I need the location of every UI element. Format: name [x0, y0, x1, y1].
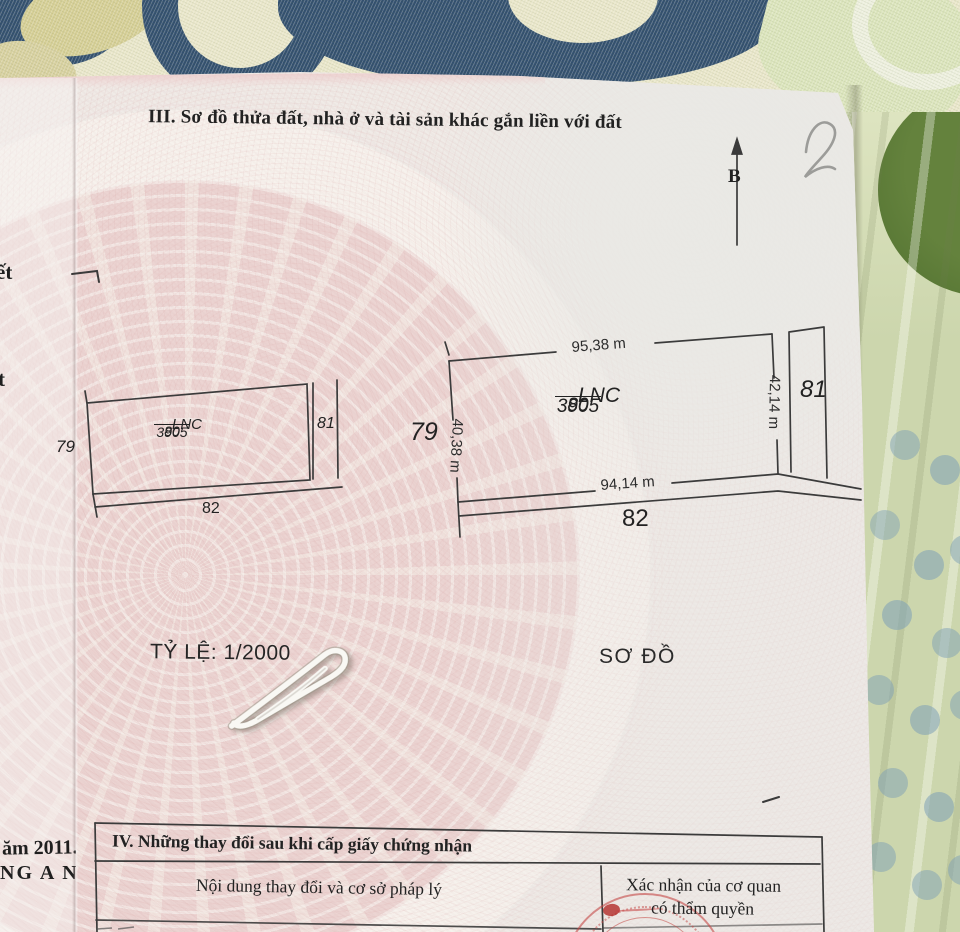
pen-marks	[72, 271, 779, 802]
dimension-left: 40,38 m	[446, 418, 466, 473]
main-neighbor-right-label: 81	[800, 376, 827, 404]
handwritten-number-stroke	[805, 122, 835, 177]
mini-neighbor-left-label: 79	[56, 437, 75, 457]
main-neighbor-bottom-label: 82	[622, 505, 649, 533]
main-neighbor-left-label: 79	[410, 418, 438, 447]
certificate-page: ết t ăm 2011. NG A NA	[0, 0, 960, 932]
main-parcel-area: 3905	[555, 396, 601, 416]
section4-right-column-header-line1: Xác nhận của cơ quan	[626, 874, 781, 897]
section4-left-column-header: Nội dung thay đổi và cơ sở pháp lý	[196, 875, 442, 900]
dimension-right: 42,14 m	[765, 375, 783, 429]
cutoff-text-fragment	[97, 927, 134, 929]
scale-label: TỶ LỆ: 1/2000	[150, 640, 291, 665]
diagram-label: SƠ ĐỒ	[599, 645, 676, 669]
north-arrow-head	[732, 139, 742, 154]
photo-of-land-certificate: ết t ăm 2011. NG A NA	[0, 0, 960, 932]
mini-neighbor-bottom-label: 82	[202, 500, 220, 518]
cadastral-linework	[0, 0, 960, 932]
north-label: B	[728, 166, 741, 188]
mini-parcel-area: 3905	[154, 424, 189, 439]
mini-neighbor-right-label: 81	[317, 415, 335, 433]
section4-right-column-header-line2: có thẩm quyền	[651, 897, 754, 919]
